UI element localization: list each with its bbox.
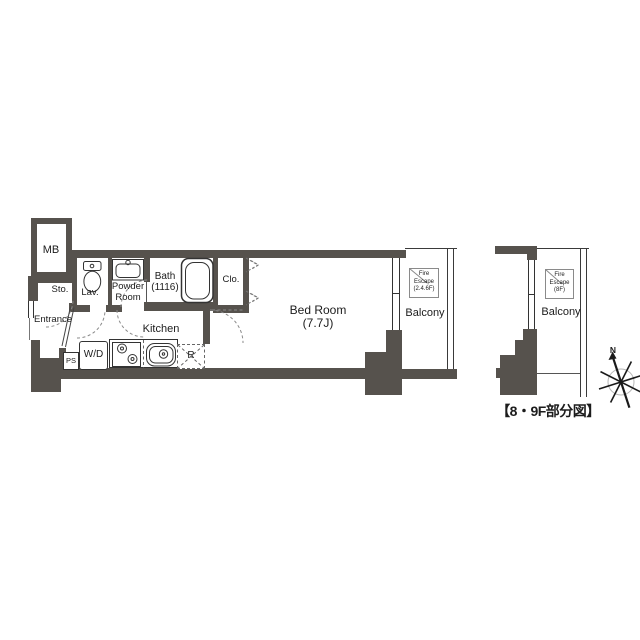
wall-hall-seg1 <box>69 305 90 312</box>
p-wall-top-step <box>527 246 537 260</box>
label-compass-north: N <box>606 346 620 356</box>
label-mb: MB <box>36 244 66 256</box>
wall-bedroom-corner-b <box>386 330 402 352</box>
stove-box <box>112 342 141 367</box>
p-balcony-divider-line <box>537 373 580 374</box>
wall-balcony-bottom <box>400 369 457 379</box>
p-wall-block-a <box>523 329 537 340</box>
p-wall-notch <box>496 368 500 378</box>
label-partial-balcony: Balcony <box>535 306 587 318</box>
wall-bedroom-corner-a <box>365 352 402 395</box>
entrance-door-leaf <box>62 307 74 348</box>
label-lavatory: Lav. <box>74 288 106 299</box>
label-partial-fire-escape: Fire Escape (8F) <box>545 272 574 295</box>
label-pipe-space: PS <box>63 357 79 365</box>
p-balcony-rail-line1 <box>580 248 581 397</box>
label-partial-caption: 【8・9F部分図】 <box>494 404 602 420</box>
p-wall-block-c <box>500 355 537 395</box>
label-kitchen: Kitchen <box>130 323 192 335</box>
wall-hall-seg2 <box>106 305 122 312</box>
washbasin-icon <box>113 260 144 281</box>
label-washer-dryer: W/D <box>79 349 108 360</box>
wall-lav-left <box>72 258 77 307</box>
floor-plan: MB Sto. Lav. Powder Room Bath (1116) Clo… <box>0 0 640 640</box>
label-storage: Sto. <box>44 285 76 296</box>
balcony-top-line <box>405 248 457 249</box>
wall-bottom-left-b <box>31 358 61 392</box>
balcony-rail-line2 <box>453 248 454 369</box>
label-fire-escape: Fire Escape (2.4.6F) <box>409 271 439 294</box>
label-fridge: R <box>177 350 205 361</box>
p-wall-block-b <box>515 340 537 355</box>
p-balcony-top-line <box>537 248 589 249</box>
label-entrance: Entrance <box>30 315 76 326</box>
wall-top <box>72 250 406 258</box>
compass-icon <box>599 352 640 408</box>
label-bedroom: Bed Room (7.7J) <box>268 304 368 331</box>
wall-storage-top <box>35 272 73 281</box>
label-closet: Clo. <box>215 275 247 286</box>
p-window <box>528 260 535 329</box>
label-bath: Bath (1116) <box>140 271 190 293</box>
wall-kitchen-bedroom <box>203 307 210 344</box>
p-balcony-rail-line2 <box>586 248 587 397</box>
wall-closet-bottom <box>213 305 249 313</box>
label-balcony: Balcony <box>399 307 451 319</box>
